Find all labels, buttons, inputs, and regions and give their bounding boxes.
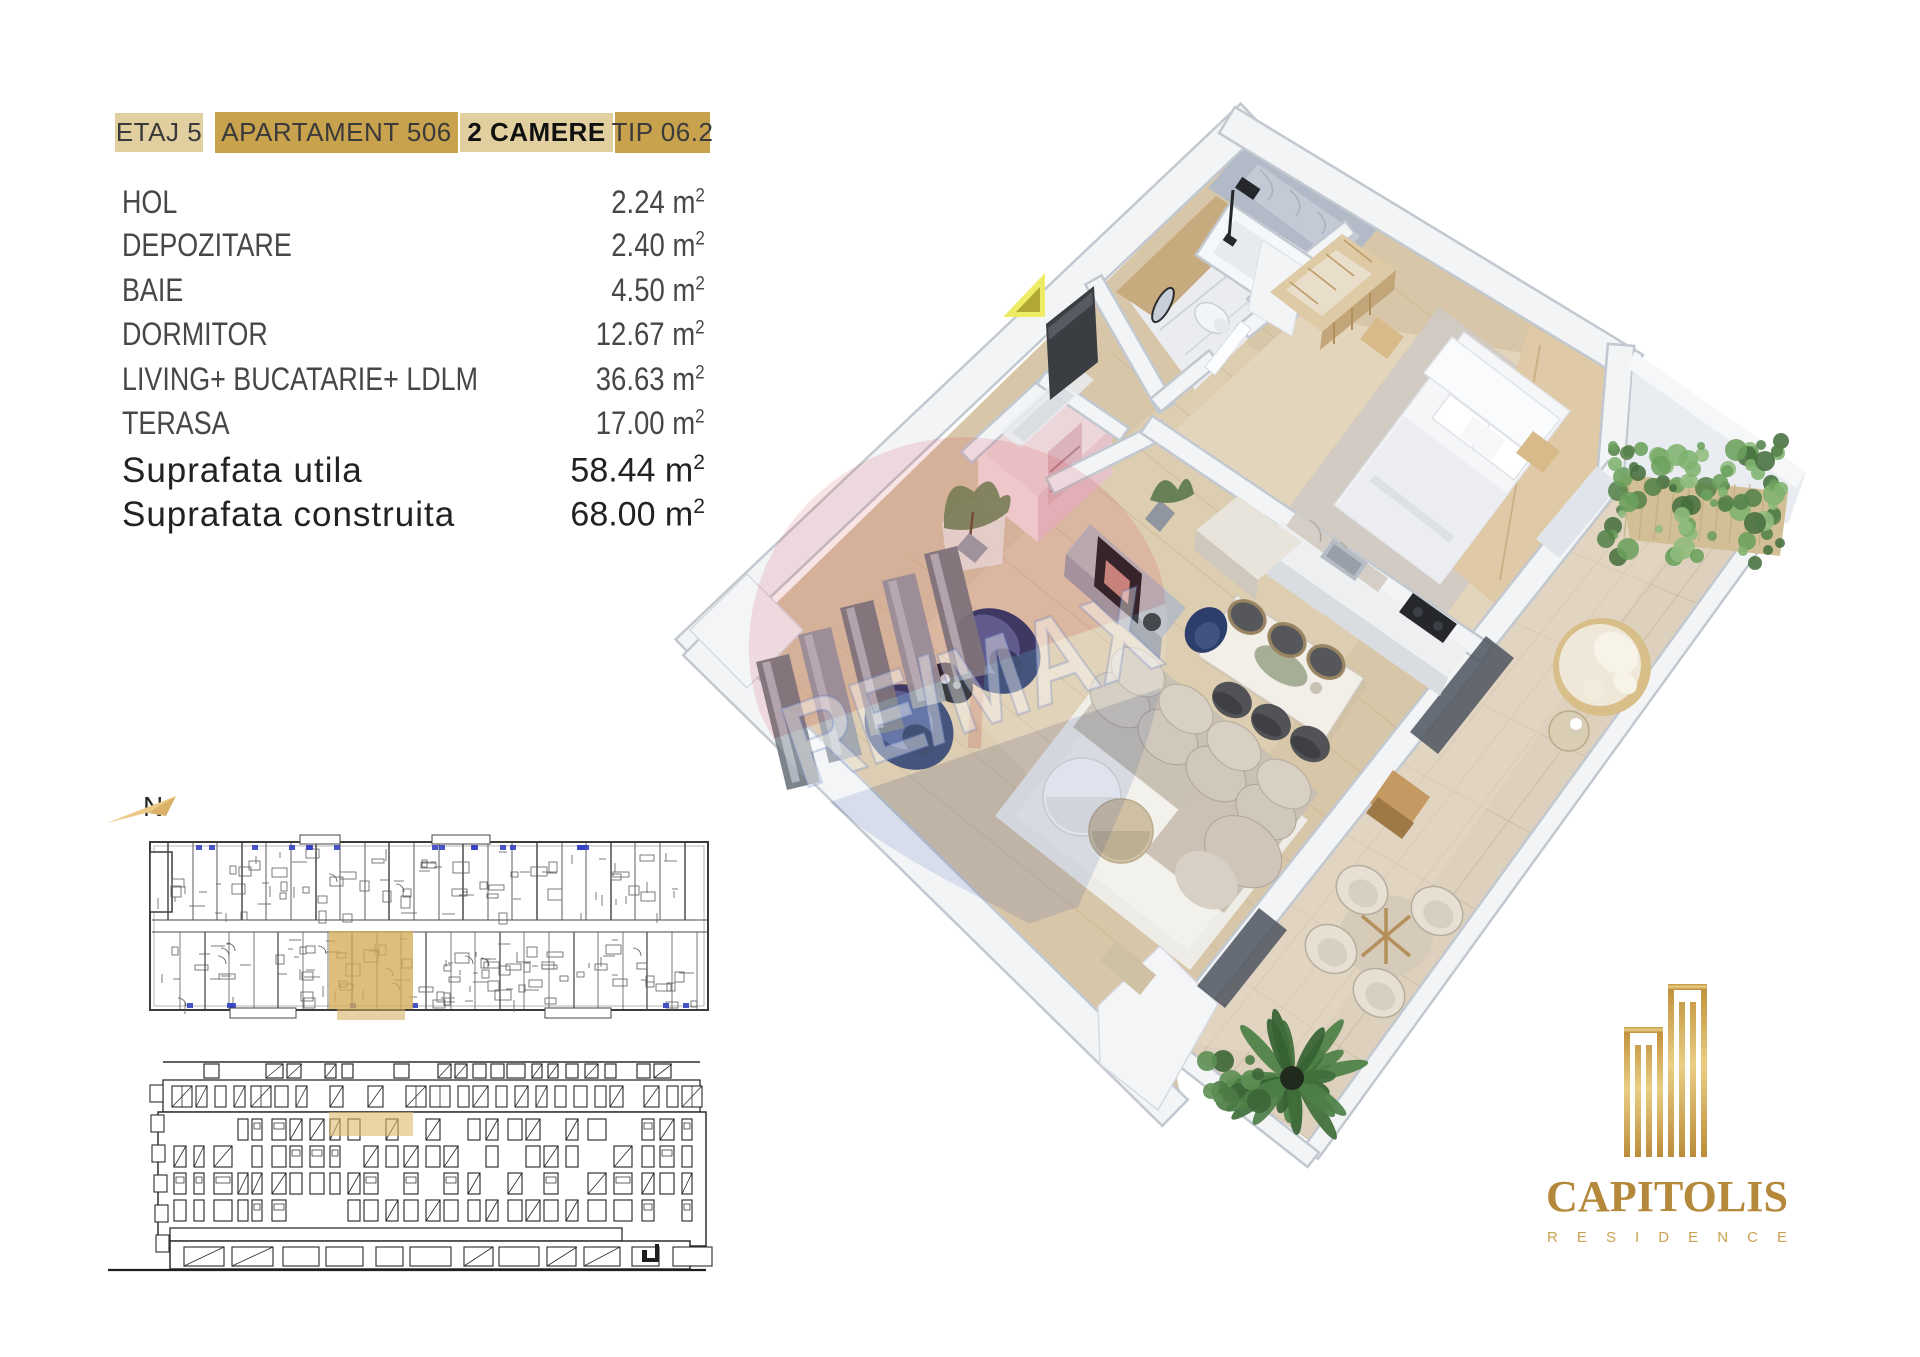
svg-text:RESIDENCE: RESIDENCE — [1547, 1229, 1787, 1246]
svg-text:CAPITOLIS: CAPITOLIS — [1546, 1172, 1788, 1221]
